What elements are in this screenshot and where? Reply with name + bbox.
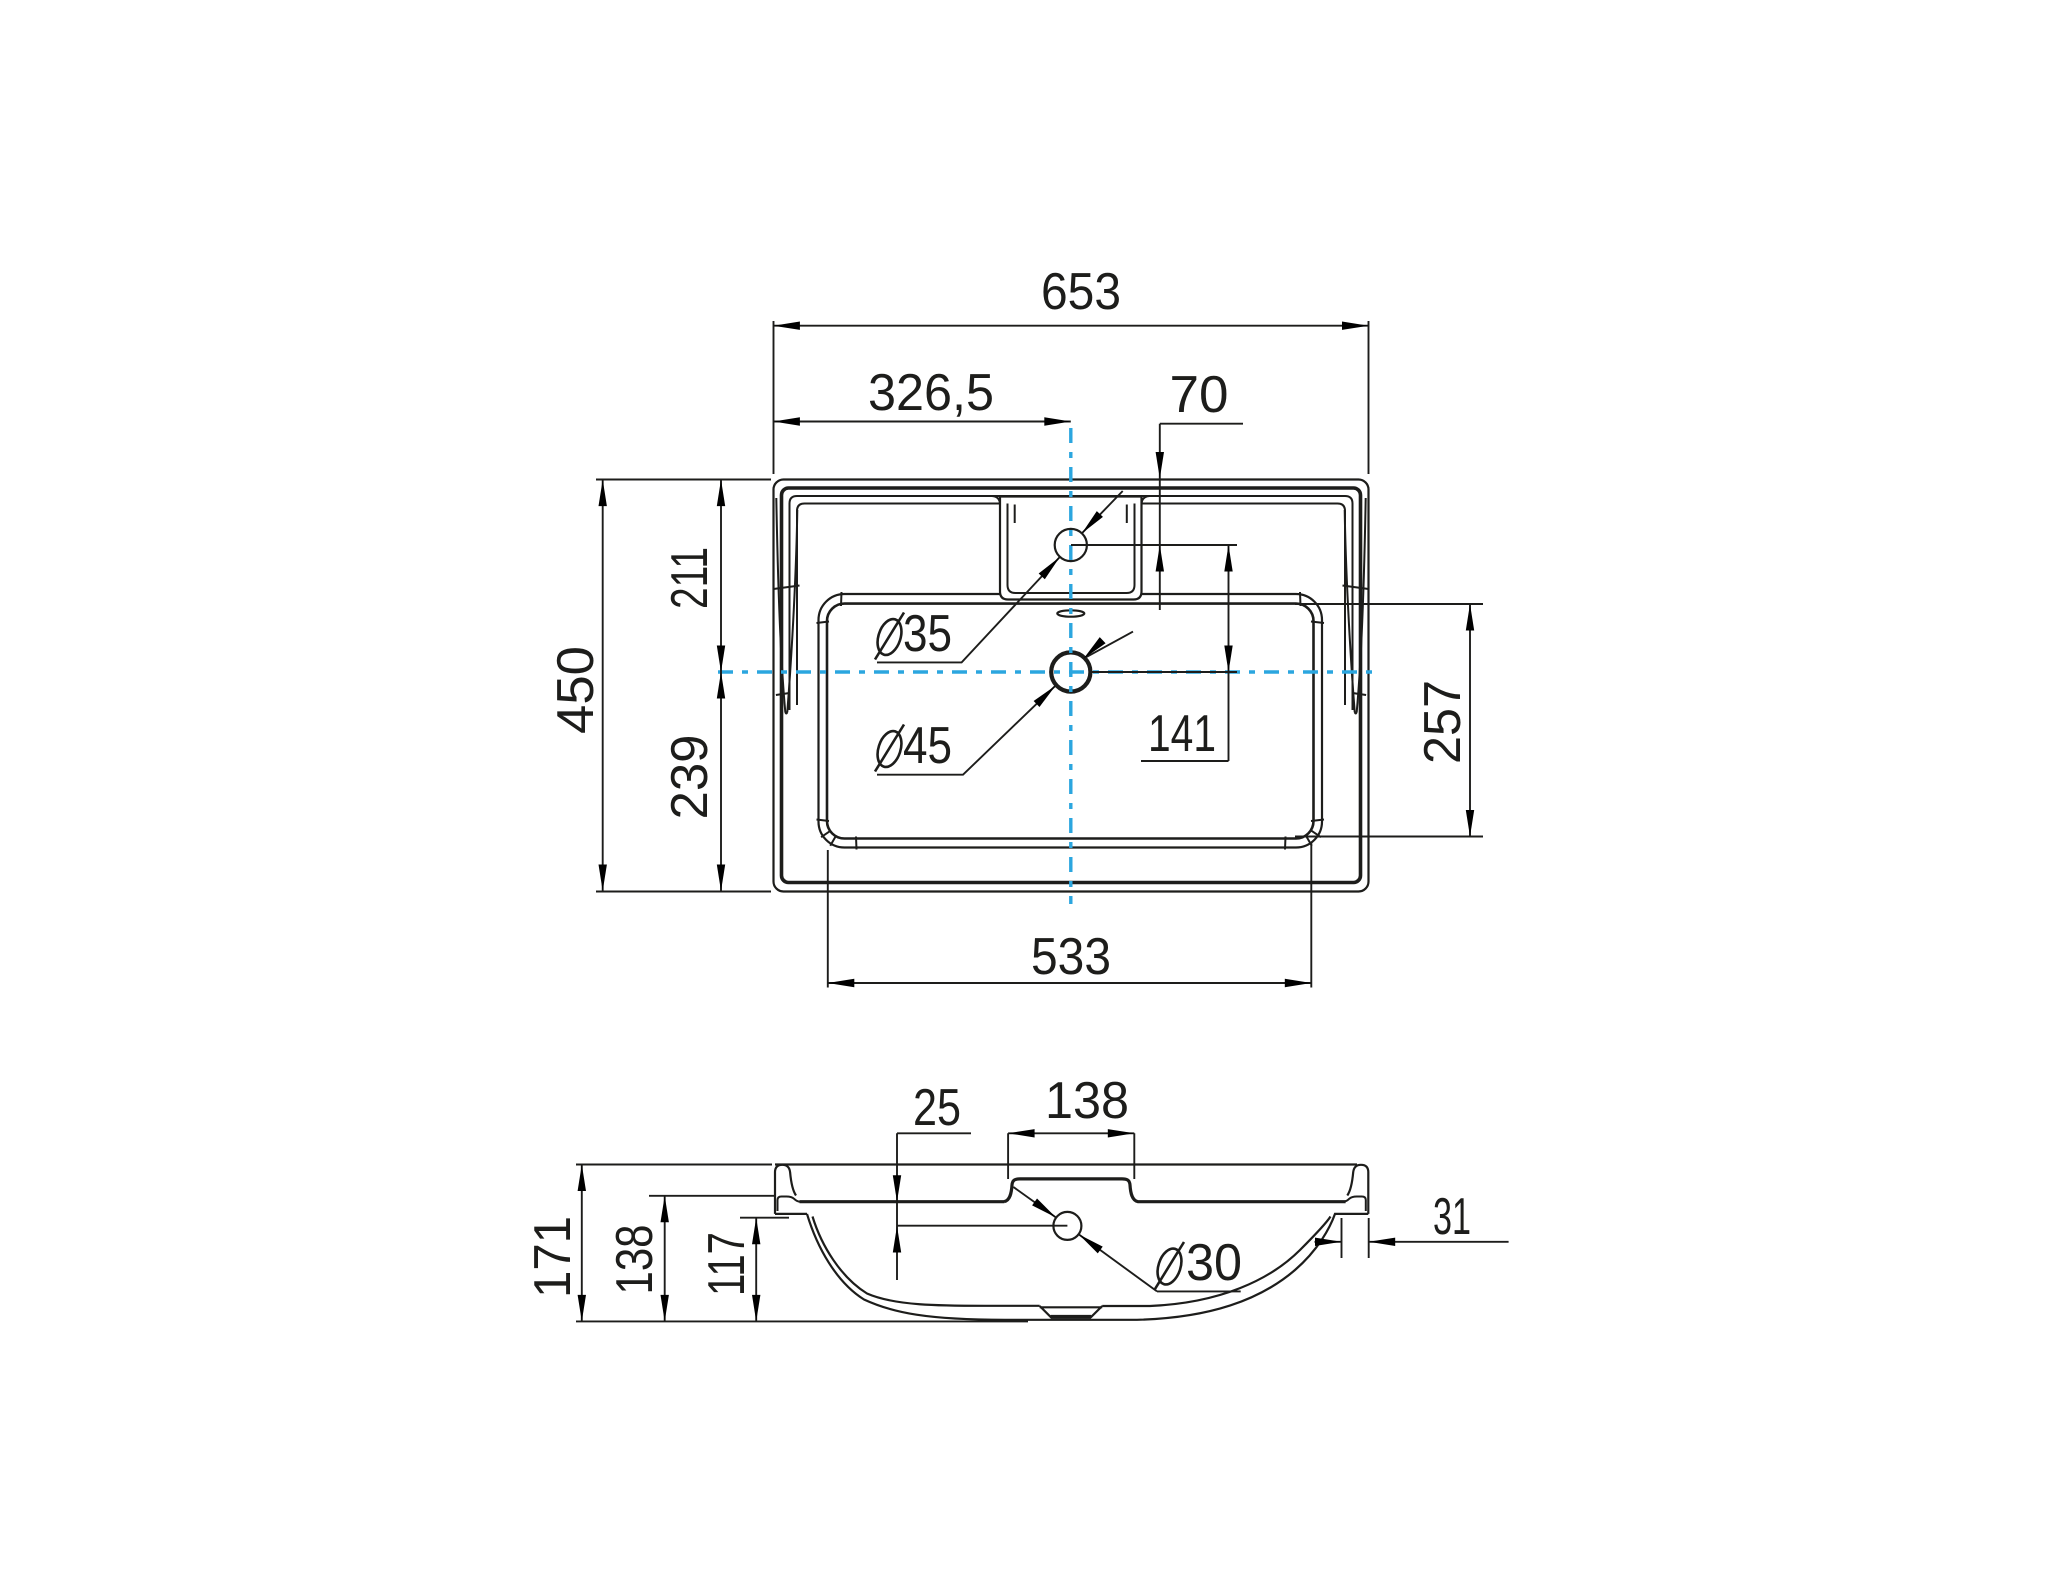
svg-text:171: 171 bbox=[524, 1216, 582, 1298]
svg-text:653: 653 bbox=[1041, 263, 1121, 321]
svg-text:31: 31 bbox=[1433, 1188, 1471, 1246]
svg-text:211: 211 bbox=[661, 547, 719, 609]
svg-text:70: 70 bbox=[1170, 366, 1229, 424]
svg-text:138: 138 bbox=[606, 1225, 664, 1295]
svg-text:138: 138 bbox=[1045, 1072, 1129, 1130]
svg-text:257: 257 bbox=[1414, 680, 1472, 764]
svg-text:239: 239 bbox=[661, 735, 719, 820]
svg-text:35: 35 bbox=[903, 605, 952, 663]
svg-text:117: 117 bbox=[698, 1232, 756, 1296]
svg-text:45: 45 bbox=[903, 717, 952, 775]
svg-text:450: 450 bbox=[547, 646, 605, 734]
svg-text:25: 25 bbox=[913, 1079, 961, 1137]
svg-text:326,5: 326,5 bbox=[868, 364, 994, 422]
svg-text:141: 141 bbox=[1148, 705, 1216, 763]
svg-text:30: 30 bbox=[1186, 1234, 1242, 1292]
svg-text:533: 533 bbox=[1031, 928, 1111, 986]
